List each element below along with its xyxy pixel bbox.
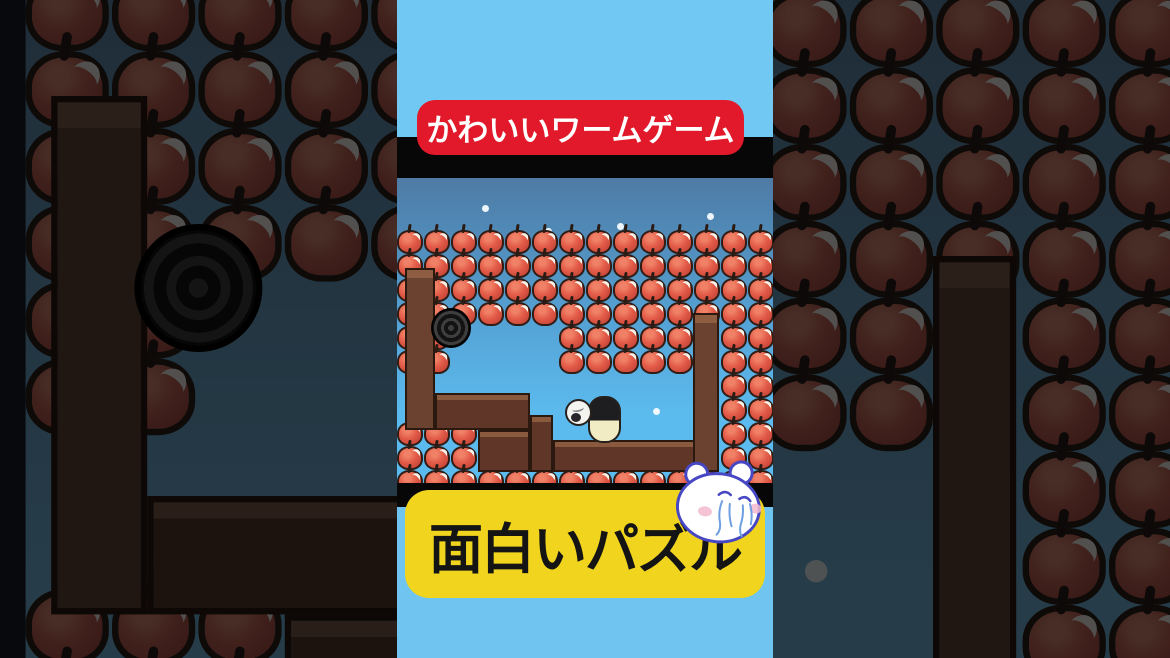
wood-pillar (405, 268, 435, 430)
apple (1109, 374, 1170, 451)
sparkle-dot (707, 213, 714, 220)
apple (773, 0, 847, 67)
apple (397, 470, 423, 483)
apple (1109, 605, 1170, 658)
apple (1109, 144, 1170, 221)
worm-body (588, 396, 621, 443)
wood-platform (285, 614, 397, 658)
sparkle-dot (482, 205, 489, 212)
apple (1109, 528, 1170, 605)
blurred-backdrop-left (0, 0, 397, 658)
apple (371, 0, 397, 51)
title-banner-text: かわいいワームゲーム (426, 105, 734, 150)
apple (478, 302, 504, 326)
apple (1109, 451, 1170, 528)
apple (1109, 67, 1170, 144)
sparkle-dot (653, 408, 660, 415)
wood-platform (478, 430, 530, 472)
crying-bear-sticker (676, 460, 766, 546)
apple (371, 128, 397, 205)
wood-platform (147, 496, 397, 614)
spiral-portal (134, 224, 262, 352)
apple (1109, 0, 1170, 67)
worm-mouth (571, 413, 581, 422)
apple (532, 302, 558, 326)
video-frame[interactable]: かわいいワームゲーム 面白いパズル (397, 0, 773, 658)
apple (285, 205, 368, 282)
apple (424, 470, 450, 483)
apple (371, 51, 397, 128)
apple (371, 205, 397, 282)
sparkle-dot (805, 560, 827, 582)
apple (773, 221, 847, 298)
apple (773, 67, 847, 144)
apple (773, 374, 847, 451)
backdrop-scene-left (26, 0, 397, 658)
apple (613, 350, 639, 374)
wood-pillar (51, 96, 147, 614)
apple (640, 350, 666, 374)
apple (667, 350, 693, 374)
apple (586, 350, 612, 374)
apple (773, 144, 847, 221)
worm-character (565, 396, 621, 443)
spiral-portal (431, 308, 471, 348)
game-scene (397, 178, 773, 483)
wood-pillar (933, 256, 1016, 658)
apple (850, 374, 933, 451)
apple (773, 298, 847, 375)
wood-platform (530, 415, 553, 472)
title-banner: かわいいワームゲーム (417, 100, 744, 155)
apple (559, 350, 585, 374)
wood-platform (435, 393, 530, 430)
blurred-backdrop-right (773, 0, 1170, 658)
wood-pillar (693, 313, 719, 472)
backdrop-scene-right (773, 0, 1170, 658)
video-screenshot: かわいいワームゲーム 面白いパズル (0, 0, 1170, 658)
apple (505, 302, 531, 326)
apple (1023, 605, 1106, 658)
apple (451, 470, 477, 483)
apple (1109, 221, 1170, 298)
worm-face (565, 399, 592, 426)
apple (1109, 298, 1170, 375)
